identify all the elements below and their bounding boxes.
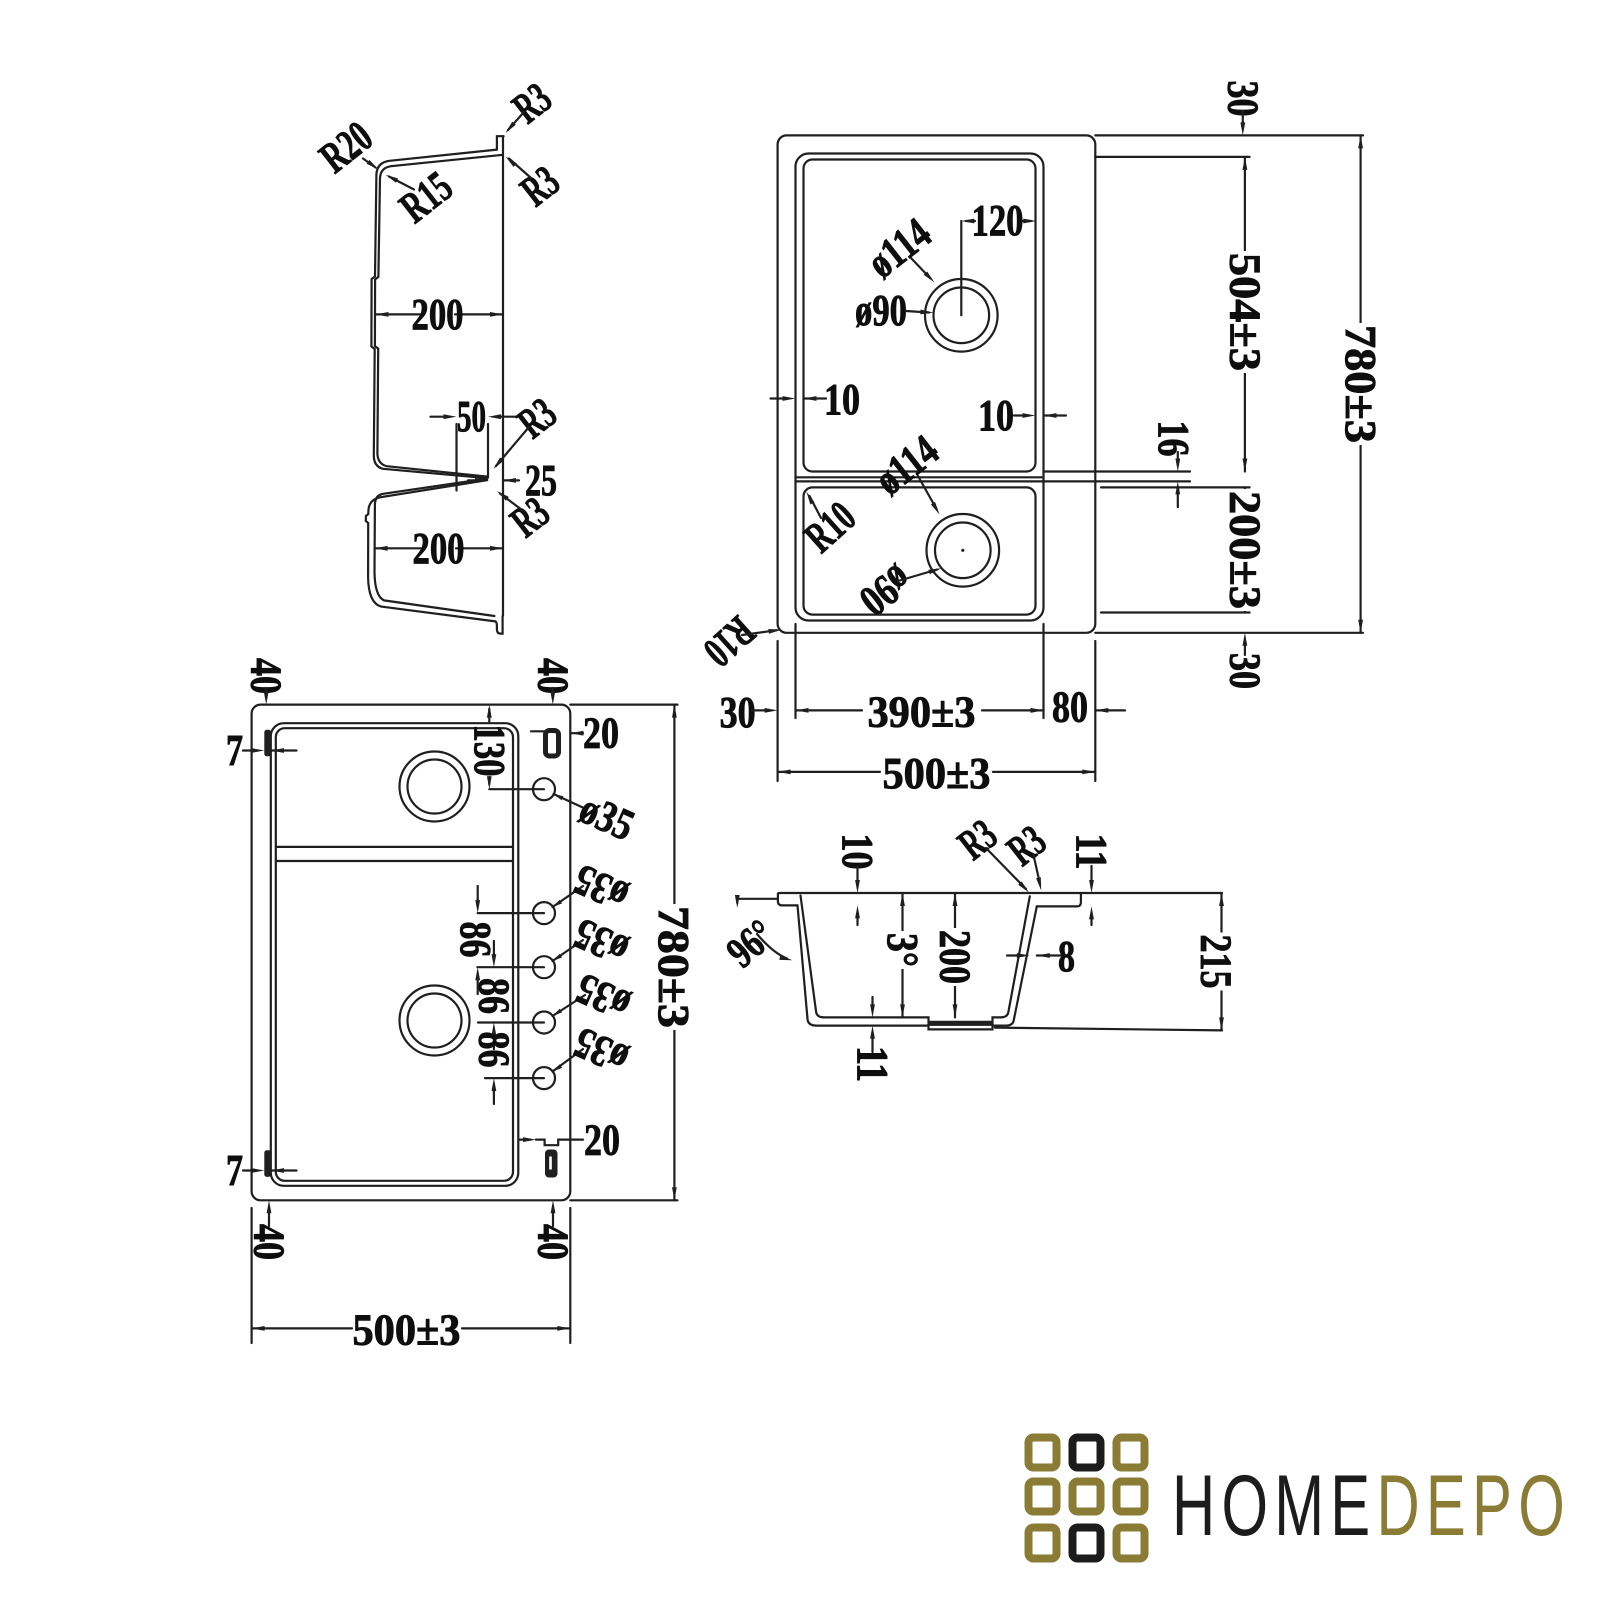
svg-text:3°: 3°: [878, 933, 927, 967]
svg-text:10: 10: [978, 391, 1014, 440]
svg-text:10: 10: [833, 834, 882, 870]
svg-text:86: 86: [469, 1032, 518, 1068]
svg-text:86: 86: [451, 922, 500, 958]
svg-text:200: 200: [413, 524, 465, 573]
svg-text:16: 16: [1149, 421, 1198, 457]
svg-text:7: 7: [226, 726, 243, 775]
svg-text:120: 120: [972, 196, 1024, 245]
svg-text:11: 11: [848, 1046, 897, 1082]
svg-text:HOMEDEPO: HOMEDEPO: [1172, 1458, 1571, 1554]
svg-text:80: 80: [1052, 683, 1088, 732]
svg-text:ø90: ø90: [855, 286, 907, 335]
svg-text:20: 20: [583, 709, 619, 758]
svg-text:200: 200: [930, 930, 979, 984]
svg-text:8: 8: [1058, 932, 1075, 981]
svg-text:130: 130: [465, 725, 514, 777]
svg-text:86: 86: [469, 978, 518, 1014]
svg-text:500±3: 500±3: [353, 1306, 461, 1355]
svg-text:215: 215: [1191, 935, 1240, 989]
svg-text:10: 10: [824, 375, 860, 424]
svg-text:30: 30: [720, 688, 756, 737]
svg-text:7: 7: [226, 1146, 243, 1195]
svg-text:504±3: 504±3: [1220, 253, 1269, 371]
svg-text:390±3: 390±3: [868, 688, 976, 737]
svg-text:200: 200: [412, 290, 464, 339]
svg-text:200±3: 200±3: [1220, 491, 1269, 609]
svg-text:30: 30: [1220, 653, 1269, 689]
svg-text:500±3: 500±3: [883, 749, 991, 798]
svg-text:780±3: 780±3: [1336, 325, 1385, 443]
svg-text:780±3: 780±3: [649, 906, 698, 1028]
svg-text:50: 50: [457, 392, 486, 441]
svg-text:20: 20: [584, 1116, 620, 1165]
svg-text:11: 11: [1067, 834, 1116, 870]
